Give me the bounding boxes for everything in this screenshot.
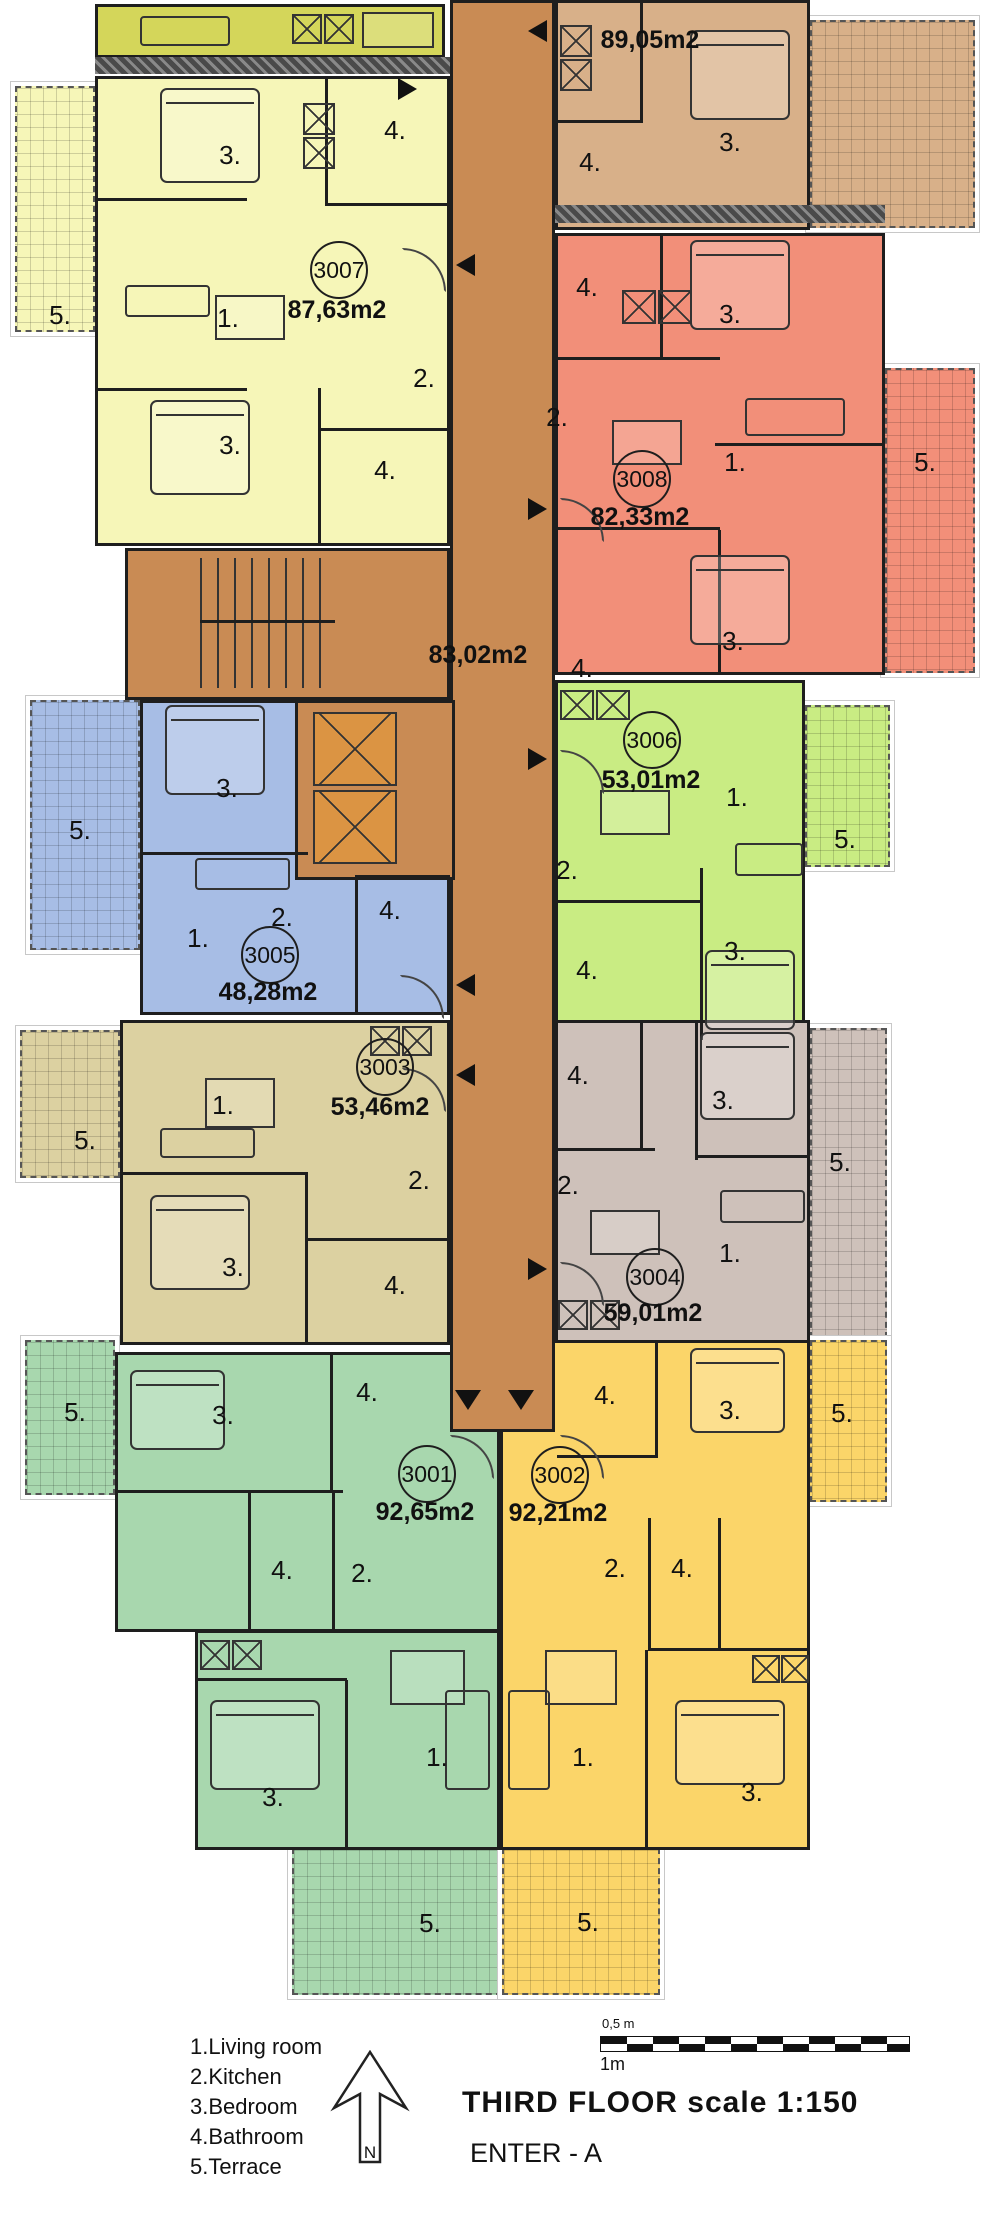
wardrobe [596, 690, 630, 720]
room-label-living: 1. [200, 1090, 246, 1120]
room-label-kitchen: 2. [545, 1170, 591, 1200]
wall [318, 388, 321, 546]
apartment-area-3006: 53,01m2 [566, 766, 736, 794]
room-label-kitchen: 2. [396, 1165, 442, 1195]
room-label-bedroom: 3. [700, 1085, 746, 1115]
sofa [445, 1690, 490, 1790]
room-label-living: 1. [707, 1238, 753, 1268]
terrace-3004 [810, 1028, 887, 1338]
stair-landing-line [200, 620, 335, 623]
wall [648, 1518, 651, 1650]
wardrobe [622, 290, 656, 324]
room-label-kitchen: 2. [339, 1558, 385, 1588]
room-label-bedroom: 3. [729, 1777, 775, 1807]
room-label-bedroom: 3. [207, 140, 253, 170]
wardrobe [781, 1655, 809, 1683]
room-label-bedroom: 3. [204, 773, 250, 803]
room-label-kitchen: 2. [592, 1553, 638, 1583]
sofa [735, 843, 803, 876]
room-label-terrace: 5. [57, 815, 103, 845]
elevator-icon [313, 790, 397, 864]
apartment-number-3008: 3008 [613, 450, 671, 508]
entry-arrow-icon [456, 974, 475, 996]
room-label-kitchen: 2. [544, 855, 590, 885]
wardrobe [752, 1655, 780, 1683]
entry-arrow-icon [528, 20, 547, 42]
wall [695, 1020, 698, 1160]
page-title: THIRD FLOOR scale 1:150 [462, 2086, 858, 2120]
wall [655, 1343, 658, 1458]
wall [355, 875, 358, 1015]
room-label-terrace: 5. [565, 1907, 611, 1937]
wall [718, 1518, 721, 1650]
room-label-bedroom: 3. [707, 299, 753, 329]
room-label-bedroom: 3. [210, 1252, 256, 1282]
room-label-bathroom: 4. [567, 147, 613, 177]
apartment-area-3002: 92,21m2 [473, 1499, 643, 1527]
legend-item-living: 1.Living room [190, 2032, 322, 2062]
dining-table [600, 790, 670, 835]
room-label-bathroom: 4. [259, 1555, 305, 1585]
sofa [160, 1128, 255, 1158]
north-label: N [364, 2143, 376, 2162]
corridor-area: 83,02m2 [393, 641, 563, 669]
stairs-icon [200, 558, 335, 688]
wall [555, 357, 720, 360]
wall [120, 1172, 308, 1175]
wardrobe [560, 690, 594, 720]
room-label-bathroom: 4. [659, 1553, 705, 1583]
wardrobe [292, 14, 322, 44]
wardrobe [303, 103, 335, 135]
wardrobe [200, 1640, 230, 1670]
wall [95, 198, 247, 201]
wall [640, 0, 643, 123]
building-entry-arrow-icon [455, 1390, 481, 1410]
wardrobe [658, 290, 692, 324]
room-label-kitchen: 2. [534, 402, 580, 432]
room-label-terrace: 5. [52, 1397, 98, 1427]
bathtub [362, 12, 434, 48]
apartment-area-3007: 87,63m2 [252, 296, 422, 324]
room-label-bedroom: 3. [200, 1400, 246, 1430]
elevator-icon [313, 712, 397, 786]
room-label-bedroom: 3. [250, 1782, 296, 1812]
wall [115, 1490, 343, 1493]
dining-table [545, 1650, 617, 1705]
room-label-bathroom: 4. [362, 455, 408, 485]
room-label-living: 1. [560, 1742, 606, 1772]
wall [355, 875, 450, 878]
apartment-area-3008: 82,33m2 [555, 503, 725, 531]
room-label-bedroom: 3. [207, 430, 253, 460]
entry-arrow-icon [456, 1064, 475, 1086]
terrace-3007 [15, 86, 95, 332]
room-label-bathroom: 4. [564, 955, 610, 985]
scale-bar [600, 2036, 910, 2052]
entry-arrow-icon [456, 254, 475, 276]
room-label-bedroom: 3. [712, 936, 758, 966]
scale-label-top: 0,5 m [602, 2016, 635, 2031]
north-arrow-icon: N [330, 2050, 410, 2165]
wardrobe [324, 14, 354, 44]
room-label-bedroom: 3. [707, 1395, 753, 1425]
wardrobe [232, 1640, 262, 1670]
room-label-terrace: 5. [37, 300, 83, 330]
sofa [125, 285, 210, 317]
room-label-terrace: 5. [817, 1147, 863, 1177]
enter-label: ENTER - A [470, 2138, 602, 2169]
corridor [450, 0, 555, 1432]
apartment-number-3005: 3005 [241, 926, 299, 984]
terrace-3003 [20, 1030, 120, 1178]
terrace-3001-bottom [292, 1848, 502, 1995]
legend-item-kitchen: 2.Kitchen [190, 2062, 322, 2092]
apartment-area-3005: 48,28m2 [183, 978, 353, 1006]
legend-item-bathroom: 4.Bathroom [190, 2122, 322, 2152]
apartment-number-3001: 3001 [398, 1445, 456, 1503]
room-label-bathroom: 4. [564, 272, 610, 302]
room-label-living: 1. [714, 782, 760, 812]
room-label-bedroom: 3. [710, 626, 756, 656]
wardrobe [303, 137, 335, 169]
wall [95, 388, 247, 391]
sofa [508, 1690, 550, 1790]
entry-arrow-icon [528, 498, 547, 520]
room-label-living: 1. [175, 923, 221, 953]
room-label-bathroom: 4. [344, 1377, 390, 1407]
wall [140, 852, 308, 855]
wall [648, 1648, 810, 1651]
room-label-bathroom: 4. [559, 653, 605, 683]
wall [695, 1155, 810, 1158]
wall [555, 900, 703, 903]
bed [210, 1700, 320, 1790]
room-label-living: 1. [712, 447, 758, 477]
wall [645, 1650, 648, 1848]
wall [555, 120, 643, 123]
apartment-area-3003: 53,46m2 [295, 1093, 465, 1121]
terrace-top-right [810, 20, 975, 228]
room-label-bathroom: 4. [372, 115, 418, 145]
wall [555, 1148, 655, 1151]
room-label-bathroom: 4. [582, 1380, 628, 1410]
wall [325, 203, 447, 206]
apartment-number-3003: 3003 [356, 1038, 414, 1096]
room-label-living: 1. [414, 1742, 460, 1772]
wall [305, 1238, 450, 1241]
apartment-number-3007: 3007 [310, 241, 368, 299]
wall [640, 1020, 643, 1150]
demising-wall [95, 57, 455, 74]
room-label-living: 1. [205, 303, 251, 333]
wall [700, 868, 703, 1040]
building-entry-arrow-icon [508, 1390, 534, 1410]
wall [715, 443, 885, 446]
wall [330, 1355, 333, 1490]
room-label-bathroom: 4. [555, 1060, 601, 1090]
entry-arrow-icon [528, 1258, 547, 1280]
room-label-bathroom: 4. [372, 1270, 418, 1300]
room-label-kitchen: 2. [401, 363, 447, 393]
scale-label-bottom: 1m [600, 2054, 625, 2075]
legend-item-bedroom: 3.Bedroom [190, 2092, 322, 2122]
apartment-number-3006: 3006 [623, 711, 681, 769]
entry-arrow-icon [398, 78, 417, 100]
wall [195, 1678, 347, 1681]
room-label-terrace: 5. [407, 1908, 453, 1938]
room-label-terrace: 5. [819, 1398, 865, 1428]
room-label-kitchen: 2. [259, 902, 305, 932]
entry-arrow-icon [528, 748, 547, 770]
room-label-terrace: 5. [822, 824, 868, 854]
floor-plan: 3007 87,63m2 89,05m2 3008 82,33m2 3006 5… [0, 0, 1000, 2215]
bed [675, 1700, 785, 1785]
demising-wall [555, 205, 885, 223]
legend: 1.Living room 2.Kitchen 3.Bedroom 4.Bath… [190, 2032, 322, 2182]
wall [305, 1175, 308, 1345]
room-label-bathroom: 4. [367, 895, 413, 925]
wall [318, 428, 448, 431]
apartment-number-3002: 3002 [531, 1446, 589, 1504]
legend-item-terrace: 5.Terrace [190, 2152, 322, 2182]
terrace-3008 [885, 368, 975, 673]
room-label-bedroom: 3. [707, 127, 753, 157]
sofa [745, 398, 845, 436]
room-label-terrace: 5. [902, 447, 948, 477]
wall [248, 1493, 251, 1632]
apartment-area-3004: 59,01m2 [568, 1299, 738, 1327]
wall [345, 1680, 348, 1848]
wall [332, 1493, 335, 1632]
apartment-number-3004: 3004 [626, 1248, 684, 1306]
sofa [140, 16, 230, 46]
apartment-area-top-right: 89,05m2 [565, 26, 735, 54]
wardrobe [560, 59, 592, 91]
room-label-terrace: 5. [62, 1125, 108, 1155]
sofa [720, 1190, 805, 1223]
sofa [195, 858, 290, 890]
